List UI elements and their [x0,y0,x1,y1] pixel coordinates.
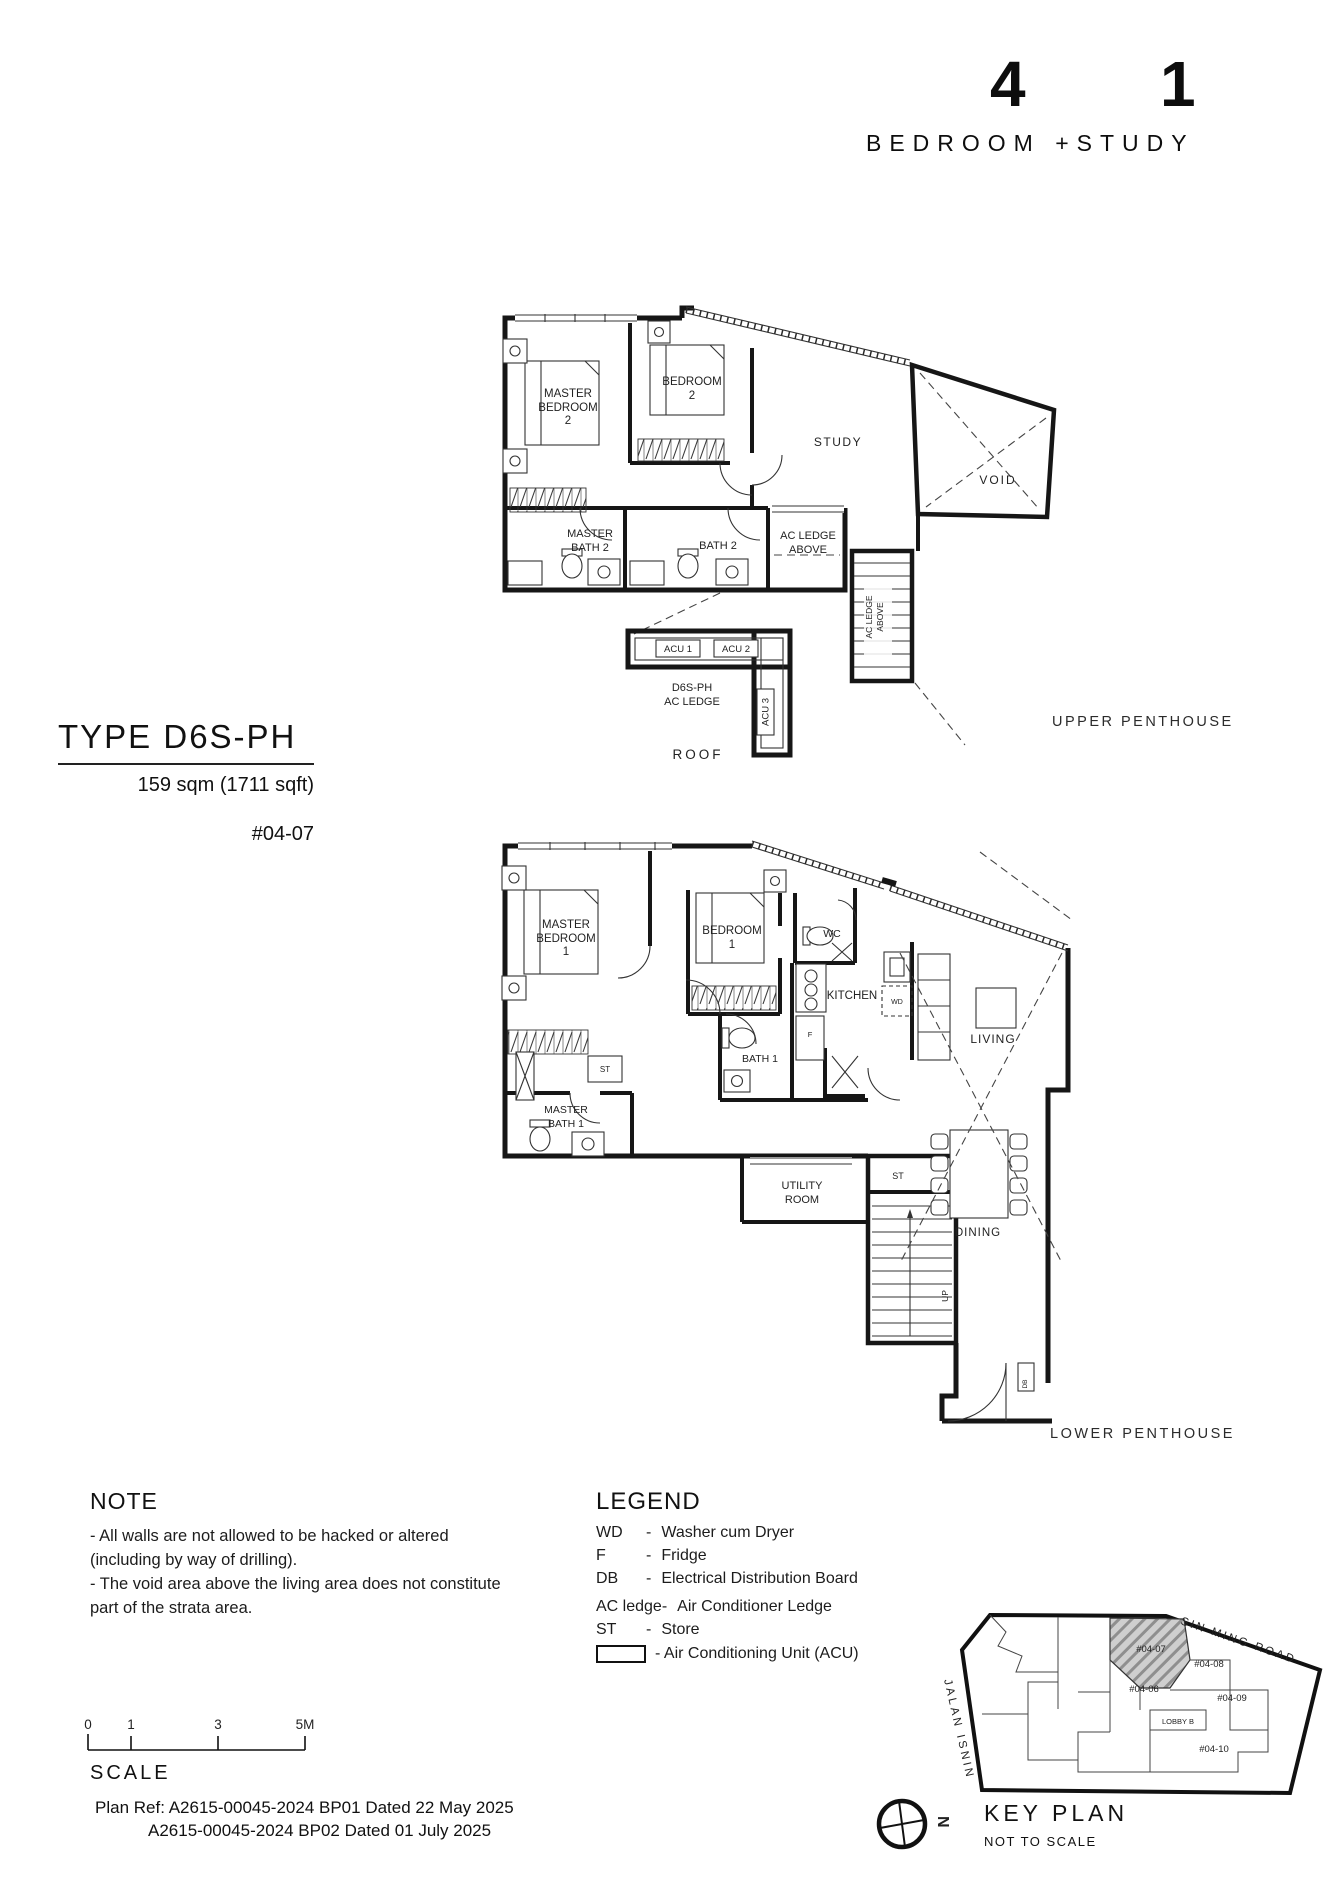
plan-ref-line2: A2615-00045-2024 BP02 Dated 01 July 2025 [148,1821,514,1841]
legend-item-db: DB - Electrical Distribution Board [596,1570,936,1588]
keyplan-subheading: NOT TO SCALE [984,1834,1097,1849]
bedroom2-label-2: 2 [689,390,695,402]
hall-store-label: ST [600,1065,610,1074]
note-block: NOTE - All walls are not allowed to be h… [90,1488,520,1621]
type-block: TYPE D6S-PH 159 sqm (1711 sqft) #04-07 [58,718,314,846]
bedroom2-wardrobe [638,439,724,461]
legend-desc: Air Conditioner Ledge [677,1598,832,1616]
master-bedroom2-label-1: MASTER [544,388,592,400]
upper-bath-fixtures [508,549,748,585]
key-plan: SIN MING ROAD JALAN ISNIN #04-07 #04-08 … [928,1562,1328,1812]
master-bath1-label-2: BATH 1 [548,1118,584,1130]
stair-store-label: ST [892,1171,904,1181]
lower-penthouse-plan: UP ST [420,838,1080,1438]
d6sph-ledge-label-1: D6S-PH [672,682,712,694]
master-bath2-label-2: BATH 2 [571,542,609,554]
note-line-4: part of the strata area. [90,1597,520,1621]
type-area: 159 sqm (1711 sqft) [58,774,314,797]
bedroom2-label-1: BEDROOM [662,376,721,388]
note-heading: NOTE [90,1488,520,1515]
scale-bar: 0 1 3 5M [84,1716,334,1758]
master-bedroom1-label-2: BEDROOM [536,933,595,945]
floorplan-page: 4 1 BEDROOM +STUDY TYPE D6S-PH 159 sqm (… [0,0,1328,1880]
acu2-label: ACU 2 [722,644,750,655]
dining-label: DINING [955,1227,1001,1239]
legend-desc: Fridge [661,1547,706,1565]
entrance-area: DB [948,1363,1034,1421]
legend-item-wd: WD - Washer cum Dryer [596,1524,936,1542]
d6sph-ledge-label-2: AC LEDGE [664,696,720,708]
db-label: DB [1022,1379,1029,1388]
plan-ref-line1: Plan Ref: A2615-00045-2024 BP01 Dated 22… [95,1798,514,1818]
acu1-label: ACU 1 [664,644,692,655]
kitchen-fixtures [796,952,910,1060]
bath2-label: BATH 2 [699,540,737,552]
legend-acu-desc: - Air Conditioning Unit (ACU) [655,1645,859,1663]
master-bedroom2-label-2: BEDROOM [538,402,597,414]
void-cross [920,373,1046,509]
keyplan-heading: KEY PLAN [984,1800,1128,1827]
legend-item-acledge: AC ledge - Air Conditioner Ledge [596,1598,936,1616]
master-bath1-label-1: MASTER [544,1104,588,1116]
master-bedroom2-wardrobe [510,488,586,512]
stair-ac-ledge-above-line2: ABOVE [875,602,885,632]
study-label: STUDY [814,435,862,449]
unit-04-06: #04-06 [1129,1684,1159,1695]
fridge-label: F [808,1030,813,1039]
living-label: LIVING [970,1032,1015,1046]
acu3-label: ACU 3 [761,698,772,726]
upper-stair: AC LEDGE ABOVE [852,551,912,681]
legend-block: LEGEND WD - Washer cum Dryer F - Fridge … [596,1488,936,1663]
type-label: TYPE D6S-PH [58,718,314,765]
legend-separator: - [662,1598,667,1616]
legend-abbr: F [596,1547,646,1565]
north-label: N [934,1816,951,1828]
legend-abbr: DB [596,1570,646,1588]
scale-label: SCALE [90,1762,171,1785]
scale-tick-3: 3 [214,1717,222,1732]
legend-desc: Store [661,1621,699,1639]
legend-abbr: WD [596,1524,646,1542]
scale-tick-0: 0 [84,1717,92,1732]
legend-desc: Electrical Distribution Board [661,1570,858,1588]
wd-label: WD [891,999,903,1006]
note-line-1: - All walls are not allowed to be hacked… [90,1525,520,1549]
legend-abbr: AC ledge [596,1598,662,1616]
ac-ledge-room-window [772,504,844,513]
legend-heading: LEGEND [596,1488,936,1516]
plan-ref-block: Plan Ref: A2615-00045-2024 BP01 Dated 22… [95,1798,514,1842]
title-number-1: 1 [1160,52,1196,116]
legend-separator: - [646,1570,651,1588]
legend-desc: Washer cum Dryer [661,1524,794,1542]
ac-ledge-above-label-2: ABOVE [789,544,827,556]
legend-separator: - [646,1547,651,1565]
wc-label: WC [823,928,841,940]
bedroom1-wardrobe [692,986,776,1010]
bedroom1-label-2: 1 [729,939,735,951]
upper-penthouse-plan: AC LEDGE ABOVE [420,293,1080,778]
master-bath2-label-1: MASTER [567,528,613,540]
lower-diagonal-windows [752,841,1068,951]
legend-separator: - [646,1621,651,1639]
note-line-3: - The void area above the living area do… [90,1573,520,1597]
unit-lobby-b: LOBBY B [1162,1717,1194,1726]
void-label: VOID [979,473,1016,487]
title-number-4: 4 [990,52,1026,116]
roof-label: ROOF [673,747,724,762]
legend-item-acu: - Air Conditioning Unit (ACU) [596,1645,936,1663]
legend-separator: - [646,1524,651,1542]
utility-label-1: UTILITY [782,1180,824,1192]
unit-04-07: #04-07 [1136,1644,1166,1655]
scale-tick-5m: 5M [296,1717,315,1732]
note-line-2: (including by way of drilling). [90,1549,520,1573]
scale-tick-1: 1 [127,1717,135,1732]
legend-item-f: F - Fridge [596,1547,936,1565]
master-bedroom1-label-3: 1 [563,946,569,958]
unit-04-08: #04-08 [1194,1659,1224,1670]
bedroom1-label-1: BEDROOM [702,925,761,937]
title-subtitle: BEDROOM +STUDY [866,130,1195,157]
legend-abbr: ST [596,1621,646,1639]
bath1-label: BATH 1 [742,1053,778,1065]
acu-swatch [596,1645,646,1663]
utility-label-2: ROOM [785,1194,819,1206]
unit-04-09: #04-09 [1217,1693,1247,1704]
stair-ac-ledge-above-line1: AC LEDGE [864,595,874,638]
north-compass: N [870,1792,970,1856]
unit-04-10: #04-10 [1199,1744,1229,1755]
dining-set [931,1130,1027,1218]
master-bedroom2-label-3: 2 [565,415,571,427]
kitchen-label: KITCHEN [827,990,877,1002]
unit-number: #04-07 [58,823,314,846]
master-bedroom1-wardrobe [508,1030,588,1054]
upper-top-window [515,313,637,323]
master-bedroom1-label-1: MASTER [542,919,590,931]
legend-item-st: ST - Store [596,1621,936,1639]
road-jalan-isnin: JALAN ISNIN [941,1678,976,1781]
stair-up-label: UP [940,1290,950,1302]
ac-ledge-above-label-1: AC LEDGE [780,530,836,542]
